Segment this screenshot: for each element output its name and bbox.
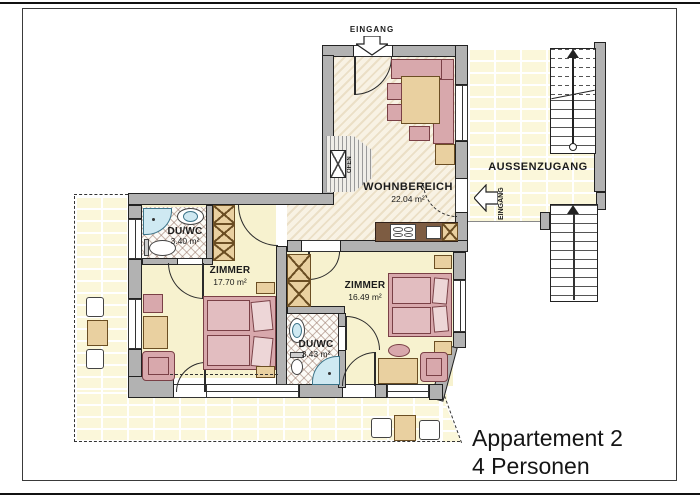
bedroom2-window xyxy=(453,280,466,332)
frame-bottom-line xyxy=(0,493,700,495)
terrace-edge-left xyxy=(74,196,76,442)
living-right-wall-1 xyxy=(455,45,468,85)
armchair-1-cushion xyxy=(148,357,169,375)
terrace-edge-bottom xyxy=(74,441,460,443)
bath2-top-wall xyxy=(287,306,345,314)
stairs-upper-walkline xyxy=(572,57,574,147)
stool-2 xyxy=(388,344,410,357)
washbasin-1-bowl xyxy=(183,211,198,222)
armchair-2-cushion xyxy=(426,358,442,376)
bath2-area: 3.43 m² xyxy=(285,350,347,360)
entrance-top-label: EINGANG xyxy=(340,25,404,34)
terrace-chair xyxy=(371,418,392,438)
bedroom1-bottom-window xyxy=(206,384,299,398)
terrace-chair xyxy=(86,297,104,317)
plan-title-line1: Appartement 2 xyxy=(472,424,672,452)
stairs-upper-arrow-icon xyxy=(567,49,579,58)
bedroom2-bottom-window xyxy=(387,384,429,398)
wall-segment xyxy=(540,212,550,230)
outside-access-label: AUSSENZUGANG xyxy=(478,161,598,174)
stool-1 xyxy=(143,294,163,313)
plan-title-line2: 4 Personen xyxy=(472,452,672,480)
living-right-wall-2 xyxy=(455,141,468,179)
bedroom2-terrace-door-leaf xyxy=(374,352,376,386)
living-window xyxy=(455,85,468,141)
bedroom1-label: ZIMMER xyxy=(190,265,270,277)
terrace-edge-top xyxy=(74,194,128,196)
room-divider-wall xyxy=(276,246,287,388)
dining-table xyxy=(401,76,440,124)
sofa-bench-corner xyxy=(441,59,454,81)
side-entrance-label: EINGANG xyxy=(498,182,510,226)
chair xyxy=(387,104,402,121)
living-room-label: WOHNBEREICH xyxy=(358,181,458,194)
washbasin-2-bowl xyxy=(292,323,302,338)
stairs-upper-walkline-dot xyxy=(569,143,577,151)
terrace-table xyxy=(394,415,416,441)
wardrobe-cell xyxy=(213,205,235,224)
wardrobe-cell xyxy=(287,254,311,281)
bedroom2-terrace-door-opening xyxy=(343,384,375,398)
chair xyxy=(387,83,402,100)
bedroom-block-top-wall xyxy=(128,193,334,205)
armchair-1 xyxy=(142,351,175,381)
left-wall-1 xyxy=(128,205,142,219)
armchair-2 xyxy=(420,352,448,382)
floor-plan: OFEN xyxy=(0,0,700,500)
bottom-wall-mid xyxy=(299,384,343,398)
bottom-wall-right xyxy=(429,384,443,400)
stairs-lower-walkline xyxy=(573,214,575,300)
bed-1-pillow xyxy=(250,300,273,332)
bedroom1-window xyxy=(128,299,142,349)
stove-burners-icon xyxy=(390,224,416,240)
toilet-2 xyxy=(291,359,303,375)
bed-2-mattress xyxy=(392,307,431,334)
terrace-chair xyxy=(419,420,440,440)
kitchen-sink xyxy=(426,226,441,239)
living-corridor-floor xyxy=(287,205,334,240)
frame-top-line xyxy=(0,2,700,4)
kitchen-wall-left xyxy=(287,240,302,252)
terrace-chair xyxy=(86,349,104,369)
bedroom2-area: 16.49 m² xyxy=(325,293,405,303)
nightstand xyxy=(256,366,275,378)
shower-2-drain xyxy=(328,372,331,375)
bath1-area: 3.40 m² xyxy=(150,237,220,247)
bottom-wall-seg xyxy=(375,384,387,398)
left-wall-2 xyxy=(128,259,142,299)
plan-title: Appartement 2 4 Personen xyxy=(472,424,672,480)
bedroom2-right-wall-1 xyxy=(453,252,466,280)
kitchen-cabinet xyxy=(442,223,458,241)
nightstand xyxy=(434,255,452,269)
bedroom1-area: 17.70 m² xyxy=(190,278,270,288)
terrace-table xyxy=(87,320,108,346)
bath1-window xyxy=(128,219,142,259)
closet-dashed-line xyxy=(170,374,278,376)
bedroom2-right-wall-2 xyxy=(453,332,466,348)
bed-1-mattress xyxy=(207,335,250,366)
bed-2-pillow xyxy=(432,305,449,332)
bed-1-pillow xyxy=(250,336,273,368)
bed-1-mattress xyxy=(207,300,250,331)
stairs-lower-arrow-icon xyxy=(567,205,579,214)
stove-label: OFEN xyxy=(347,151,357,179)
entrance-arrow-icon xyxy=(356,36,388,56)
entrance-door-leaf xyxy=(354,57,356,95)
shower-1-drain xyxy=(152,218,155,221)
stove-box xyxy=(330,150,346,178)
side-entrance-arrow-icon xyxy=(474,184,498,212)
desk-2 xyxy=(378,358,418,384)
living-room-area: 22.04 m² xyxy=(358,195,458,205)
left-wall-3 xyxy=(128,349,142,378)
sideboard xyxy=(435,144,455,165)
wardrobe-cell xyxy=(287,281,311,307)
desk-1 xyxy=(143,316,168,349)
bed-2-pillow xyxy=(432,277,449,304)
bedroom2-door-opening xyxy=(302,240,340,252)
chair xyxy=(409,126,430,141)
bedroom2-label: ZIMMER xyxy=(325,280,405,292)
